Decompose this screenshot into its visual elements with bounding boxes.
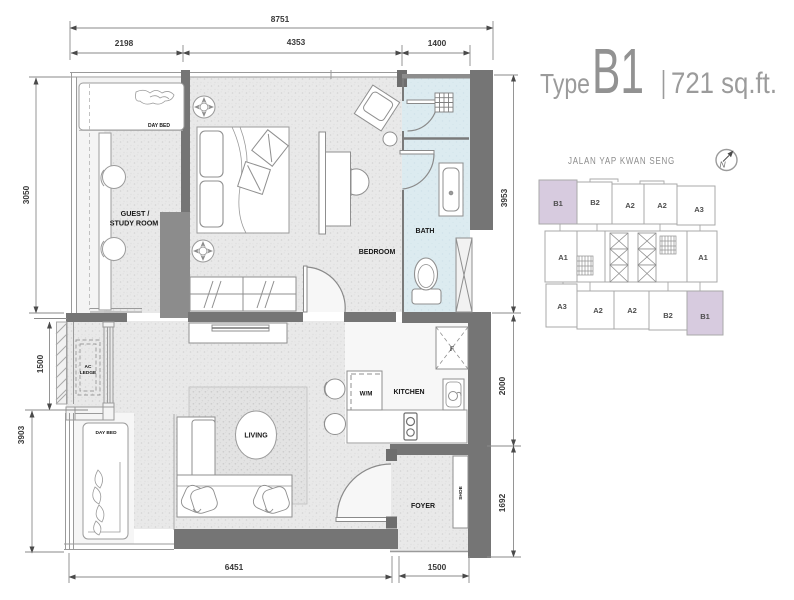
svg-text:A2: A2 xyxy=(593,306,603,315)
svg-text:1500: 1500 xyxy=(35,354,45,373)
svg-text:721 sq.ft.: 721 sq.ft. xyxy=(671,67,777,100)
svg-text:B1: B1 xyxy=(553,199,563,208)
svg-text:1500: 1500 xyxy=(428,562,447,572)
svg-text:1400: 1400 xyxy=(428,38,447,48)
svg-text:8751: 8751 xyxy=(271,14,290,24)
svg-text:BEDROOM: BEDROOM xyxy=(359,249,396,256)
svg-text:B2: B2 xyxy=(663,311,673,320)
svg-text:3903: 3903 xyxy=(16,425,26,444)
svg-text:SHOE: SHOE xyxy=(458,485,464,499)
svg-text:FOYER: FOYER xyxy=(411,503,435,510)
svg-text:DAY BED: DAY BED xyxy=(148,123,170,129)
svg-text:KITCHEN: KITCHEN xyxy=(393,389,424,396)
svg-text:6451: 6451 xyxy=(225,562,244,572)
svg-text:A2: A2 xyxy=(657,201,667,210)
svg-text:2000: 2000 xyxy=(497,376,507,395)
svg-text:B1: B1 xyxy=(700,312,710,321)
svg-text:JALAN YAP KWAN SENG: JALAN YAP KWAN SENG xyxy=(568,155,675,167)
svg-text:1692: 1692 xyxy=(497,493,507,512)
svg-text:3050: 3050 xyxy=(21,185,31,204)
svg-text:4353: 4353 xyxy=(287,37,306,47)
svg-text:GUEST /: GUEST / xyxy=(121,209,150,218)
svg-text:A1: A1 xyxy=(558,253,568,262)
svg-text:A3: A3 xyxy=(694,205,704,214)
svg-text:A2: A2 xyxy=(627,306,637,315)
svg-text:3953: 3953 xyxy=(499,188,509,207)
svg-text:A3: A3 xyxy=(557,302,567,311)
svg-text:Type: Type xyxy=(540,68,590,99)
svg-text:AC: AC xyxy=(85,364,92,370)
svg-text:STUDY ROOM: STUDY ROOM xyxy=(110,219,159,228)
svg-text:BATH: BATH xyxy=(416,228,435,235)
svg-text:B1: B1 xyxy=(592,35,644,107)
svg-text:DAY BED: DAY BED xyxy=(95,430,117,436)
svg-text:W/M: W/M xyxy=(360,391,373,398)
svg-text:N: N xyxy=(720,160,727,170)
svg-text:B2: B2 xyxy=(590,198,600,207)
svg-text:LIVING: LIVING xyxy=(244,433,268,440)
svg-text:F: F xyxy=(450,346,454,353)
svg-text:A1: A1 xyxy=(698,253,708,262)
svg-text:2198: 2198 xyxy=(115,38,134,48)
svg-text:LEDGE: LEDGE xyxy=(80,370,97,376)
svg-text:A2: A2 xyxy=(625,201,635,210)
